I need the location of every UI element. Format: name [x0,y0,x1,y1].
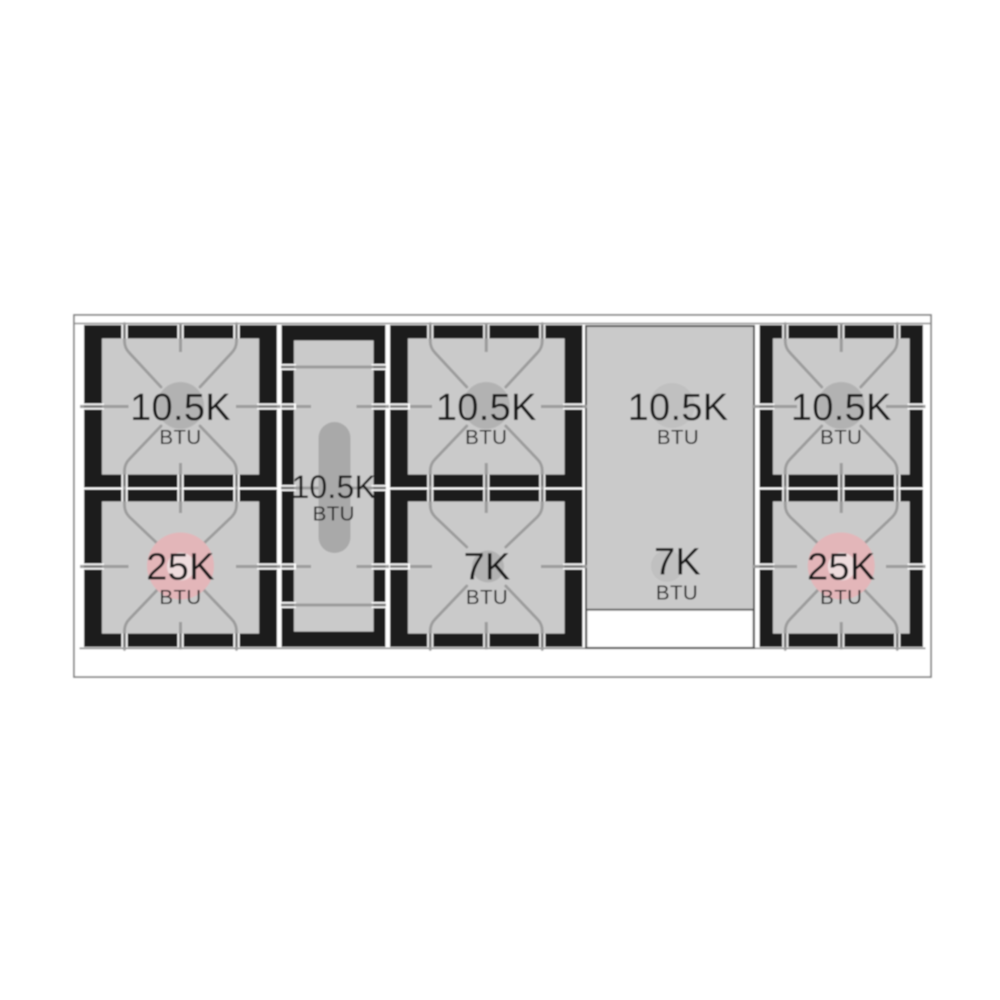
svg-text:BTU: BTU [820,426,862,449]
svg-text:25K: 25K [807,547,876,589]
svg-text:BTU: BTU [159,426,201,449]
svg-text:BTU: BTU [820,586,862,609]
svg-text:10.5K: 10.5K [130,387,231,429]
svg-text:10.5K: 10.5K [291,469,376,505]
svg-text:BTU: BTU [656,582,698,605]
svg-text:BTU: BTU [313,503,355,526]
svg-text:10.5K: 10.5K [628,387,729,429]
svg-text:7K: 7K [654,542,701,584]
svg-text:BTU: BTU [465,426,507,449]
svg-text:BTU: BTU [159,586,201,609]
svg-text:10.5K: 10.5K [791,387,892,429]
svg-text:BTU: BTU [466,586,508,609]
svg-text:BTU: BTU [657,426,699,449]
svg-text:25K: 25K [146,547,215,589]
svg-text:7K: 7K [463,547,510,589]
svg-text:10.5K: 10.5K [436,387,537,429]
